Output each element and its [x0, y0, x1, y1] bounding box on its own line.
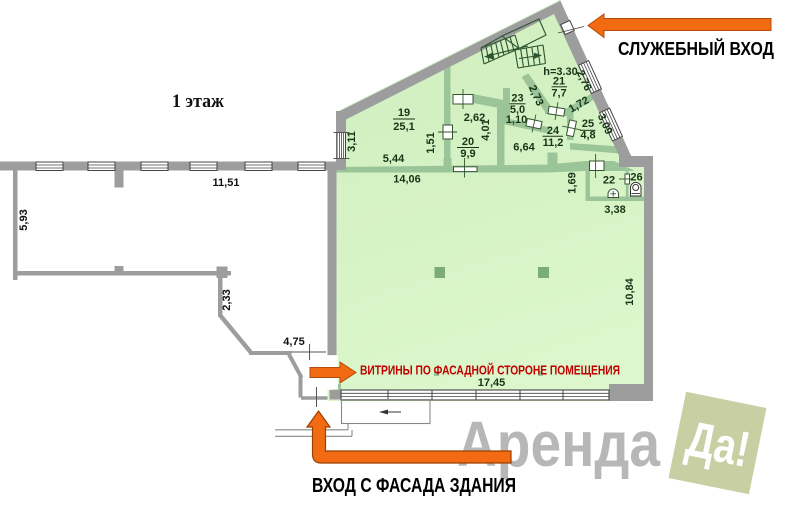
svg-text:25,1: 25,1 [393, 121, 414, 133]
svg-text:h=3.30: h=3.30 [543, 66, 578, 78]
svg-text:ВХОД С ФАСАДА ЗДАНИЯ: ВХОД С ФАСАДА ЗДАНИЯ [312, 475, 516, 497]
svg-text:24: 24 [547, 125, 560, 137]
svg-text:6,64: 6,64 [513, 142, 535, 154]
svg-text:5,93: 5,93 [18, 209, 30, 230]
svg-text:19: 19 [398, 107, 410, 119]
svg-text:4,01: 4,01 [480, 119, 492, 140]
svg-text:1,10: 1,10 [506, 114, 527, 126]
svg-text:11,2: 11,2 [543, 137, 564, 149]
svg-text:СЛУЖЕБНЫЙ ВХОД: СЛУЖЕБНЫЙ ВХОД [618, 38, 774, 59]
svg-text:1,51: 1,51 [425, 132, 437, 153]
svg-text:10,84: 10,84 [624, 277, 636, 305]
svg-text:9,9: 9,9 [460, 148, 475, 160]
svg-text:7,7: 7,7 [551, 88, 566, 100]
svg-text:14,06: 14,06 [393, 174, 421, 186]
svg-text:Аренда: Аренда [457, 408, 660, 480]
svg-text:ВИТРИНЫ ПО ФАСАДНОЙ СТОРОНЕ ПО: ВИТРИНЫ ПО ФАСАДНОЙ СТОРОНЕ ПОМЕЩЕНИЯ [360, 363, 620, 378]
svg-text:20: 20 [462, 136, 474, 148]
svg-text:2,33: 2,33 [221, 289, 233, 310]
svg-text:3,11: 3,11 [346, 131, 358, 152]
svg-text:17,45: 17,45 [478, 377, 506, 389]
svg-text:4,8: 4,8 [580, 130, 595, 142]
svg-text:23: 23 [511, 93, 523, 105]
svg-text:25: 25 [582, 118, 594, 130]
svg-text:5,44: 5,44 [383, 153, 405, 165]
svg-text:1 этаж: 1 этаж [172, 91, 224, 112]
svg-text:26: 26 [630, 172, 642, 184]
svg-text:22: 22 [603, 175, 615, 187]
svg-text:4,75: 4,75 [283, 336, 304, 348]
svg-text:11,51: 11,51 [213, 177, 240, 189]
svg-text:3,38: 3,38 [604, 204, 625, 216]
svg-text:1,69: 1,69 [567, 172, 579, 193]
